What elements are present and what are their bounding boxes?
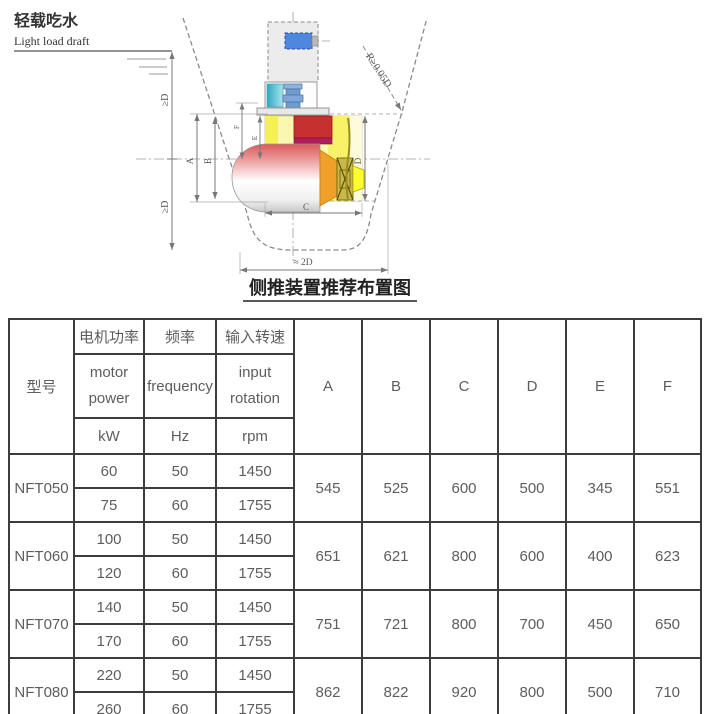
svg-text:D: D — [353, 157, 363, 164]
waterline-marks — [127, 59, 168, 74]
cell-frequency: 50 — [144, 454, 216, 488]
cell-frequency: 50 — [144, 658, 216, 692]
cell-model: NFT080 — [9, 658, 74, 714]
ge-d-dimension: ≥D ≥D — [160, 52, 177, 250]
cell-dim-b: 525 — [362, 454, 430, 522]
cell-dim-a: 651 — [294, 522, 362, 590]
spec-table: 型号 电机功率 频率 输入转速 A B C D E F motor power … — [8, 318, 702, 714]
cell-dim-b: 822 — [362, 658, 430, 714]
draft-label-cn: 轻载吃水 — [14, 11, 79, 30]
header-power-en-line2: power — [75, 386, 143, 412]
svg-text:F: F — [232, 125, 241, 129]
cell-rpm: 1755 — [216, 556, 294, 590]
cell-dim-c: 600 — [430, 454, 498, 522]
coupling-housing — [267, 84, 283, 107]
thruster-layout-diagram: 轻载吃水 Light load draft R≥0.05D ≥D ≥D — [0, 0, 707, 312]
header-power-unit: kW — [74, 418, 144, 454]
cell-rpm: 1755 — [216, 624, 294, 658]
hub-cap — [353, 166, 364, 192]
header-power-en-line1: motor — [75, 360, 143, 386]
header-dim-d: D — [498, 319, 566, 454]
cell-dim-a: 862 — [294, 658, 362, 714]
table-row: NFT070 140 50 1450 751 721 800 700 450 6… — [9, 590, 701, 624]
cell-dim-a: 751 — [294, 590, 362, 658]
shaft-coupling — [283, 84, 303, 109]
header-freq-cn: 频率 — [144, 319, 216, 354]
cell-dim-e: 345 — [566, 454, 634, 522]
header-dim-f: F — [634, 319, 701, 454]
datasheet-page: 轻载吃水 Light load draft R≥0.05D ≥D ≥D — [0, 0, 707, 714]
diagram-caption: 侧推装置推荐布置图 — [249, 277, 411, 298]
gearbox-upper — [294, 116, 332, 138]
svg-text:E: E — [250, 135, 259, 140]
header-rpm-cn: 输入转速 — [216, 319, 294, 354]
header-dim-a: A — [294, 319, 362, 454]
cell-rpm: 1450 — [216, 590, 294, 624]
svg-text:B: B — [203, 158, 213, 164]
draft-label-en: Light load draft — [14, 34, 90, 48]
cell-power: 140 — [74, 590, 144, 624]
propeller-hub — [337, 158, 353, 200]
cell-frequency: 50 — [144, 590, 216, 624]
header-power-cn: 电机功率 — [74, 319, 144, 354]
cell-dim-f: 710 — [634, 658, 701, 714]
cell-rpm: 1755 — [216, 488, 294, 522]
cell-dim-d: 700 — [498, 590, 566, 658]
svg-text:A: A — [185, 157, 195, 164]
cell-dim-e: 450 — [566, 590, 634, 658]
cell-model: NFT060 — [9, 522, 74, 590]
motor-compartment — [268, 22, 318, 82]
cell-frequency: 60 — [144, 556, 216, 590]
header-power-en: motor power — [74, 354, 144, 418]
table-row: NFT080 220 50 1450 862 822 920 800 500 7… — [9, 658, 701, 692]
header-rpm-en: input rotation — [216, 354, 294, 418]
cell-rpm: 1755 — [216, 692, 294, 714]
dimension-a: A — [185, 114, 197, 202]
cell-dim-f: 623 — [634, 522, 701, 590]
cell-dim-e: 500 — [566, 658, 634, 714]
cell-dim-e: 400 — [566, 522, 634, 590]
cell-power: 75 — [74, 488, 144, 522]
svg-text:≈ 2D: ≈ 2D — [293, 258, 312, 268]
cell-dim-b: 621 — [362, 522, 430, 590]
cell-power: 260 — [74, 692, 144, 714]
cell-dim-b: 721 — [362, 590, 430, 658]
cell-rpm: 1450 — [216, 658, 294, 692]
cell-dim-f: 650 — [634, 590, 701, 658]
cell-power: 100 — [74, 522, 144, 556]
cell-frequency: 60 — [144, 692, 216, 714]
table-row: NFT060 100 50 1450 651 621 800 600 400 6… — [9, 522, 701, 556]
header-rpm-en-line2: rotation — [217, 386, 293, 412]
dimension-f: F — [232, 103, 242, 159]
header-freq-en: frequency — [144, 354, 216, 418]
cell-model: NFT070 — [9, 590, 74, 658]
cell-dim-f: 551 — [634, 454, 701, 522]
dimension-2d: ≈ 2D — [240, 258, 388, 270]
cell-frequency: 60 — [144, 488, 216, 522]
table-row: NFT050 60 50 1450 545 525 600 500 345 55… — [9, 454, 701, 488]
cell-dim-c: 800 — [430, 522, 498, 590]
ge-d-lower-label: ≥D — [160, 201, 171, 214]
header-rpm-en-line1: input — [217, 360, 293, 386]
header-dim-e: E — [566, 319, 634, 454]
cell-power: 170 — [74, 624, 144, 658]
cell-dim-d: 800 — [498, 658, 566, 714]
cell-dim-c: 920 — [430, 658, 498, 714]
header-model: 型号 — [9, 319, 74, 454]
dimension-b: B — [203, 117, 215, 199]
cell-frequency: 60 — [144, 624, 216, 658]
cell-model: NFT050 — [9, 454, 74, 522]
header-freq-unit: Hz — [144, 418, 216, 454]
cell-frequency: 50 — [144, 522, 216, 556]
svg-text:C: C — [303, 202, 309, 212]
radius-label: R≥0.05D — [363, 51, 394, 90]
ge-d-upper-label: ≥D — [160, 94, 171, 107]
cell-rpm: 1450 — [216, 522, 294, 556]
cell-dim-d: 500 — [498, 454, 566, 522]
cell-power: 60 — [74, 454, 144, 488]
cell-dim-d: 600 — [498, 522, 566, 590]
header-dim-c: C — [430, 319, 498, 454]
header-rpm-unit: rpm — [216, 418, 294, 454]
cell-dim-a: 545 — [294, 454, 362, 522]
cell-dim-c: 800 — [430, 590, 498, 658]
header-dim-b: B — [362, 319, 430, 454]
cell-power: 120 — [74, 556, 144, 590]
cell-power: 220 — [74, 658, 144, 692]
gearbox-stripe — [294, 138, 332, 144]
electric-motor — [285, 33, 312, 49]
cell-rpm: 1450 — [216, 454, 294, 488]
motor-shaft-end — [312, 36, 318, 46]
